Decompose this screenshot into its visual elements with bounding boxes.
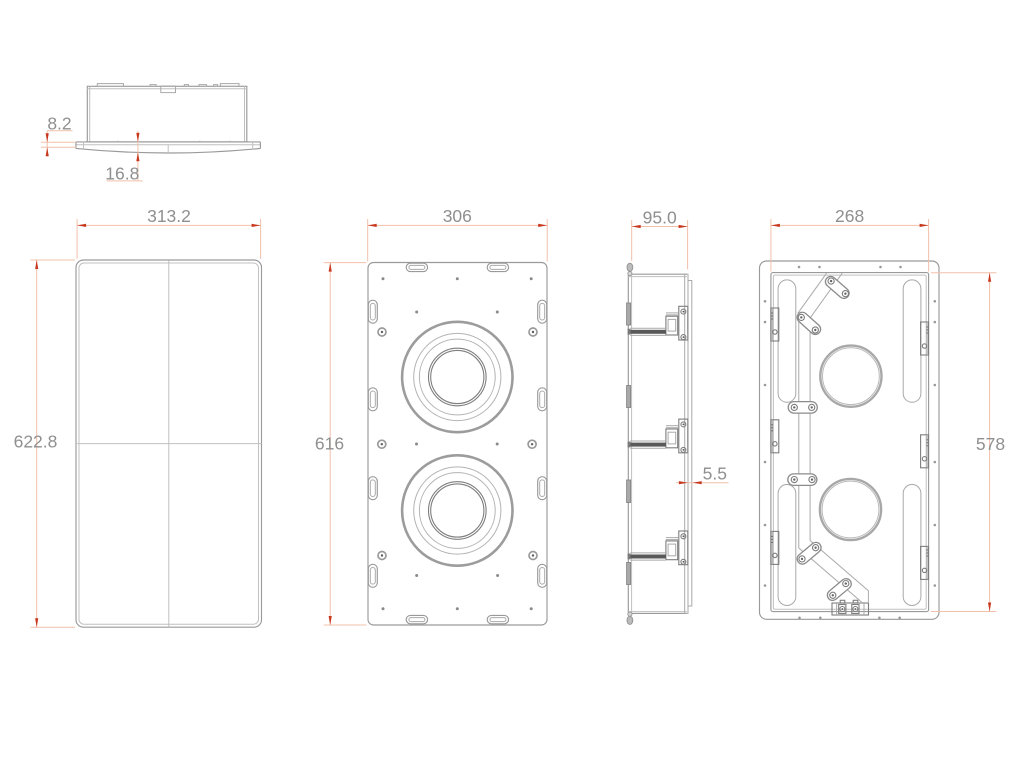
svg-text:616: 616 xyxy=(315,434,344,454)
svg-text:95.0: 95.0 xyxy=(643,208,677,228)
svg-text:306: 306 xyxy=(443,206,472,226)
svg-text:16.8: 16.8 xyxy=(105,164,139,184)
svg-text:5.5: 5.5 xyxy=(703,464,727,484)
svg-text:268: 268 xyxy=(835,206,864,226)
svg-text:578: 578 xyxy=(976,434,1005,454)
svg-text:8.2: 8.2 xyxy=(47,114,71,134)
svg-text:313.2: 313.2 xyxy=(147,206,191,226)
svg-text:622.8: 622.8 xyxy=(14,432,58,452)
